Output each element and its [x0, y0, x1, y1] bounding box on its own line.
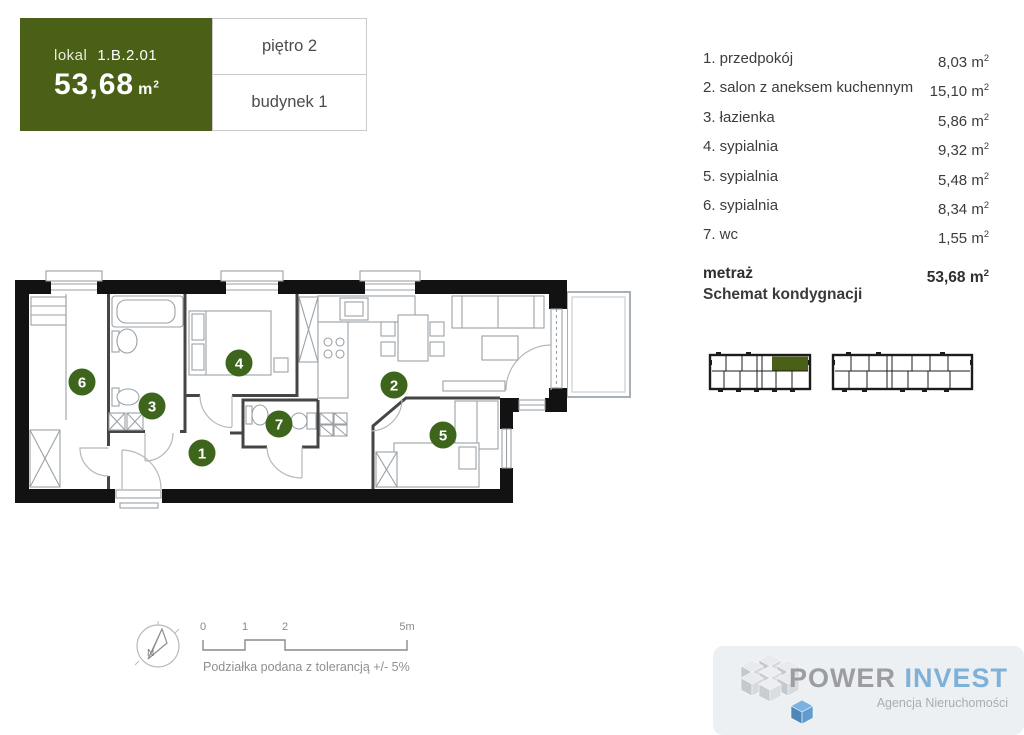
room-row: 4. sypialnia9,32 m2	[703, 134, 989, 163]
floorplan-sheet: lokal1.B.2.01 53,68m2 piętro 2 budynek 1…	[0, 0, 1024, 735]
lokal-value: 1.B.2.01	[97, 47, 157, 64]
building-2-minimap	[832, 352, 973, 392]
badge-room-3: 3	[139, 393, 166, 420]
svg-text:1: 1	[242, 621, 248, 633]
kitchen-sink	[340, 298, 368, 320]
floor-cell: piętro 2	[213, 19, 366, 74]
apartment-floor-plan: 1 2 3 4 5 6 7	[10, 266, 644, 512]
building-cell: budynek 1	[213, 74, 366, 130]
svg-text:5: 5	[439, 427, 447, 444]
badge-room-1: 1	[189, 440, 216, 467]
badge-room-2: 2	[381, 372, 408, 399]
lokal-label: lokal	[54, 47, 87, 64]
sink	[117, 329, 137, 353]
badge-room-5: 5	[430, 422, 457, 449]
room-row: 6. sypialnia8,34 m2	[703, 193, 989, 222]
room-row: 5. sypialnia5,48 m2	[703, 164, 989, 193]
sideboard	[443, 381, 505, 391]
agency-logo-panel: POWER INVEST Agencja Nieruchomości	[713, 646, 1024, 735]
schemat-title: Schemat kondygnacji	[703, 286, 862, 304]
svg-text:1: 1	[198, 445, 206, 462]
chair	[381, 322, 395, 336]
scale-bar: 0 1 2 5m	[195, 614, 425, 658]
room-row: 3. łazienka5,86 m2	[703, 105, 989, 134]
toilet	[117, 389, 139, 405]
badge-room-4: 4	[226, 350, 253, 377]
svg-text:2: 2	[390, 377, 398, 394]
room-list: 1. przedpokój8,03 m2 2. salon z aneksem …	[703, 46, 989, 290]
svg-text:6: 6	[78, 374, 86, 391]
toilet	[291, 413, 307, 429]
badge-room-6: 6	[69, 369, 96, 396]
room-row: 2. salon z aneksem kuchennym15,10 m2	[703, 75, 989, 104]
room-row: 7. wc1,55 m2	[703, 222, 989, 251]
coffee-table	[482, 336, 518, 360]
logo-invest: INVEST	[904, 663, 1008, 693]
balcony	[567, 292, 630, 397]
entrance-threshold	[116, 490, 161, 498]
entrance-step	[120, 503, 158, 508]
svg-text:7: 7	[275, 416, 283, 433]
kitchen-counter-side	[318, 322, 348, 398]
sink	[252, 405, 268, 425]
nightstand	[274, 358, 288, 372]
current-unit-highlight	[772, 357, 808, 371]
badge-room-7: 7	[266, 411, 293, 438]
svg-text:3: 3	[148, 398, 156, 415]
building-1-minimap	[709, 352, 811, 392]
logo-power: POWER	[789, 663, 896, 693]
floor-schematic-minimap	[700, 346, 980, 396]
dining-table	[398, 315, 428, 361]
svg-text:5m: 5m	[399, 621, 414, 633]
scale-tolerance-note: Podziałka podana z tolerancją +/- 5%	[203, 660, 410, 674]
room-row: 1. przedpokój8,03 m2	[703, 46, 989, 75]
svg-text:2: 2	[282, 621, 288, 633]
north-compass-icon: N	[128, 616, 190, 678]
unit-meta-cells: piętro 2 budynek 1	[212, 18, 367, 131]
svg-text:4: 4	[235, 355, 244, 372]
unit-header-card: lokal1.B.2.01 53,68m2 piętro 2 budynek 1	[20, 18, 367, 131]
unit-id-box: lokal1.B.2.01 53,68m2	[20, 18, 212, 131]
agency-logo-text: POWER INVEST Agencja Nieruchomości	[789, 663, 1008, 710]
unit-id-row: lokal1.B.2.01	[54, 47, 212, 64]
unit-area: 53,68m2	[54, 68, 212, 102]
svg-text:N: N	[147, 648, 154, 659]
logo-subtitle: Agencja Nieruchomości	[789, 696, 1008, 710]
svg-text:0: 0	[200, 621, 206, 633]
